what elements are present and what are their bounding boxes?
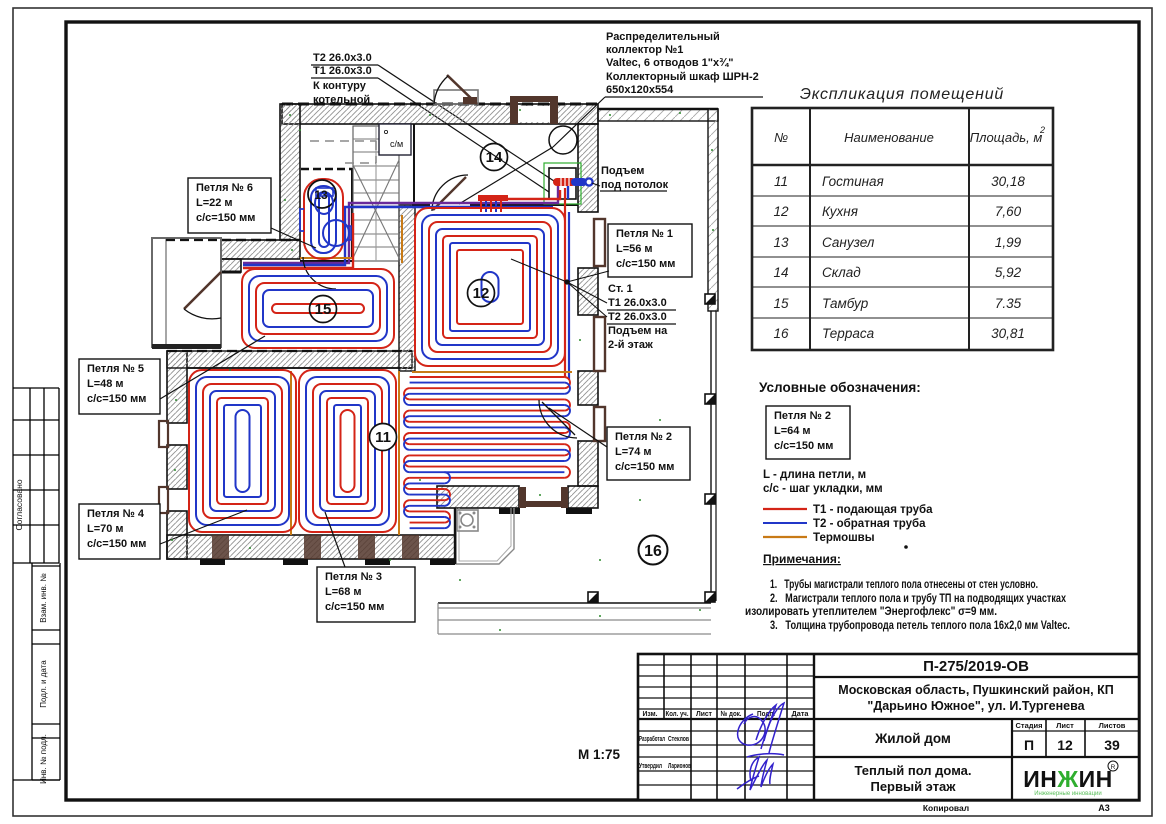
svg-text:Московская область, Пушкинский: Московская область, Пушкинский район, КП (838, 683, 1113, 697)
svg-text:Теплый пол дома.: Теплый пол дома. (855, 763, 972, 778)
svg-text:L - длина петли, м: L - длина петли, м (763, 469, 866, 481)
svg-text:14: 14 (773, 265, 788, 280)
svg-text:Санузел: Санузел (822, 235, 875, 250)
svg-text:с/с=150 мм: с/с=150 мм (615, 461, 674, 473)
svg-text:с/с=150 мм: с/с=150 мм (325, 601, 384, 613)
svg-text:1. Трубы магистрали теплого: 1. Трубы магистрали теплого пола отнесен… (770, 579, 1038, 591)
svg-text:Т1 26.0х3.0: Т1 26.0х3.0 (313, 65, 372, 77)
svg-text:Петля № 4: Петля № 4 (87, 508, 145, 520)
svg-text:с/с=150 мм: с/с=150 мм (616, 258, 675, 270)
svg-text:Петля № 3: Петля № 3 (325, 571, 382, 583)
svg-text:Ларионов: Ларионов (668, 761, 691, 770)
svg-text:Т2 26.0х3.0: Т2 26.0х3.0 (608, 311, 667, 323)
svg-text:Лист: Лист (696, 709, 712, 718)
svg-text:Наименование: Наименование (844, 130, 934, 145)
svg-text:Кухня: Кухня (822, 204, 858, 219)
svg-text:13: 13 (773, 235, 789, 250)
svg-text:12: 12 (473, 285, 490, 302)
svg-text:изолировать утеплителем "Энерг: изолировать утеплителем "Энергофлекс" σ=… (745, 606, 997, 618)
svg-text:Тамбур: Тамбур (822, 296, 869, 311)
svg-text:L=56 м: L=56 м (616, 243, 653, 255)
svg-text:ИНЖИН: ИНЖИН (1023, 766, 1113, 792)
svg-text:11: 11 (375, 429, 391, 446)
svg-text:Кол. уч.: Кол. уч. (666, 709, 689, 718)
svg-text:Петля № 1: Петля № 1 (616, 228, 673, 240)
svg-text:Ст. 1: Ст. 1 (608, 283, 633, 295)
svg-text:Копировал: Копировал (923, 803, 969, 813)
svg-text:Т1 26.0х3.0: Т1 26.0х3.0 (608, 297, 667, 309)
svg-text:с/с=150 мм: с/с=150 мм (87, 538, 146, 550)
svg-text:Экспликация помещений: Экспликация помещений (800, 86, 1004, 103)
svg-text:с/м: с/м (390, 139, 403, 149)
svg-text:под потолок: под потолок (601, 179, 669, 191)
svg-text:15: 15 (315, 301, 332, 318)
svg-text:№ док.: № док. (721, 709, 742, 718)
svg-text:Подл. и дата: Подл. и дата (39, 660, 48, 708)
svg-text:Первый этаж: Первый этаж (870, 779, 956, 794)
svg-text:L=68 м: L=68 м (325, 586, 362, 598)
svg-text:Терраса: Терраса (822, 326, 875, 341)
svg-text:16: 16 (644, 543, 662, 560)
svg-text:Примечания:: Примечания: (763, 552, 841, 566)
svg-text:L=64 м: L=64 м (774, 425, 811, 437)
svg-text:15: 15 (773, 296, 789, 311)
svg-text:Гостиная: Гостиная (822, 174, 884, 189)
svg-text:Распределительный: Распределительный (606, 31, 720, 43)
svg-text:L=74 м: L=74 м (615, 446, 652, 458)
svg-text:12: 12 (773, 204, 789, 219)
svg-text:Коллекторный шкаф ШРН-2: Коллекторный шкаф ШРН-2 (606, 71, 759, 83)
svg-text:14: 14 (486, 149, 503, 166)
svg-text:Дата: Дата (792, 709, 810, 718)
svg-text:5,92: 5,92 (995, 265, 1022, 280)
svg-text:коллектор №1: коллектор №1 (606, 44, 683, 56)
svg-text:Петля № 2: Петля № 2 (615, 431, 672, 443)
svg-text:Термошвы: Термошвы (813, 532, 875, 544)
svg-text:13: 13 (314, 188, 328, 202)
svg-text:Изм.: Изм. (643, 709, 658, 718)
svg-text:К контуру: К контуру (313, 80, 367, 92)
svg-text:с/с=150 мм: с/с=150 мм (774, 440, 833, 452)
svg-text:"Дарьино Южное", ул. И.Тургене: "Дарьино Южное", ул. И.Тургенева (867, 699, 1085, 713)
svg-text:30,18: 30,18 (991, 174, 1025, 189)
svg-text:Петля № 6: Петля № 6 (196, 182, 253, 194)
svg-text:7,60: 7,60 (995, 204, 1022, 219)
svg-text:П-275/2019-ОВ: П-275/2019-ОВ (923, 658, 1029, 675)
svg-text:Стадия: Стадия (1015, 721, 1042, 730)
svg-text:11: 11 (774, 174, 788, 189)
svg-text:3. Толщина трубопровода пете: 3. Толщина трубопровода петель теплого п… (770, 620, 1070, 632)
svg-text:7.35: 7.35 (995, 296, 1022, 311)
svg-text:Лист: Лист (1056, 721, 1074, 730)
svg-text:Площадь, м: Площадь, м (970, 130, 1043, 145)
svg-text:2-й этаж: 2-й этаж (608, 339, 653, 351)
svg-text:Листов: Листов (1099, 721, 1126, 730)
svg-text:Подъем: Подъем (601, 165, 644, 177)
svg-text:Т2 - обратная труба: Т2 - обратная труба (813, 518, 926, 530)
svg-text:L=22 м: L=22 м (196, 197, 233, 209)
svg-text:650х120х554: 650х120х554 (606, 84, 674, 96)
svg-text:1,99: 1,99 (995, 235, 1022, 250)
svg-text:Утвердил: Утвердил (639, 761, 662, 770)
svg-text:Инв. № подл.: Инв. № подл. (39, 734, 48, 784)
svg-text:М 1:75: М 1:75 (578, 747, 621, 762)
svg-text:16: 16 (773, 326, 789, 341)
svg-text:Согласовано: Согласовано (14, 479, 24, 530)
svg-text:П: П (1024, 737, 1034, 753)
svg-text:Склад: Склад (822, 265, 861, 280)
svg-text:L=70 м: L=70 м (87, 523, 124, 535)
svg-text:с/с - шаг укладки, мм: с/с - шаг укладки, мм (763, 483, 883, 495)
svg-text:Т1 - подающая труба: Т1 - подающая труба (813, 504, 933, 516)
svg-text:Петля № 2: Петля № 2 (774, 410, 831, 422)
svg-text:№: № (774, 130, 788, 145)
svg-text:Подъем на: Подъем на (608, 325, 668, 337)
svg-text:Стеклов: Стеклов (668, 734, 689, 743)
svg-text:Т2 26.0х3.0: Т2 26.0х3.0 (313, 52, 372, 64)
svg-text:с/с=150 мм: с/с=150 мм (87, 393, 146, 405)
svg-text:Условные обозначения:: Условные обозначения: (759, 380, 921, 395)
svg-text:с/с=150 мм: с/с=150 мм (196, 212, 255, 224)
svg-text:2: 2 (1039, 125, 1045, 135)
svg-text:R: R (1111, 764, 1116, 771)
svg-text:L=48 м: L=48 м (87, 378, 124, 390)
svg-text:30,81: 30,81 (991, 326, 1025, 341)
svg-text:Разработал: Разработал (639, 734, 665, 743)
svg-text:Петля № 5: Петля № 5 (87, 363, 144, 375)
svg-text:12: 12 (1057, 737, 1073, 753)
svg-text:А3: А3 (1098, 803, 1110, 813)
svg-text:Инженерные инновации: Инженерные инновации (1034, 791, 1102, 797)
svg-text:39: 39 (1104, 737, 1120, 753)
svg-text:2. Магистрали теплого пола и: 2. Магистрали теплого пола и трубу ТП на… (770, 593, 1066, 605)
svg-text:Valtec, 6 отводов 1"х¾": Valtec, 6 отводов 1"х¾" (606, 57, 733, 69)
svg-text:Жилой дом: Жилой дом (874, 731, 951, 746)
svg-text:Взам. инв. №: Взам. инв. № (39, 573, 48, 623)
